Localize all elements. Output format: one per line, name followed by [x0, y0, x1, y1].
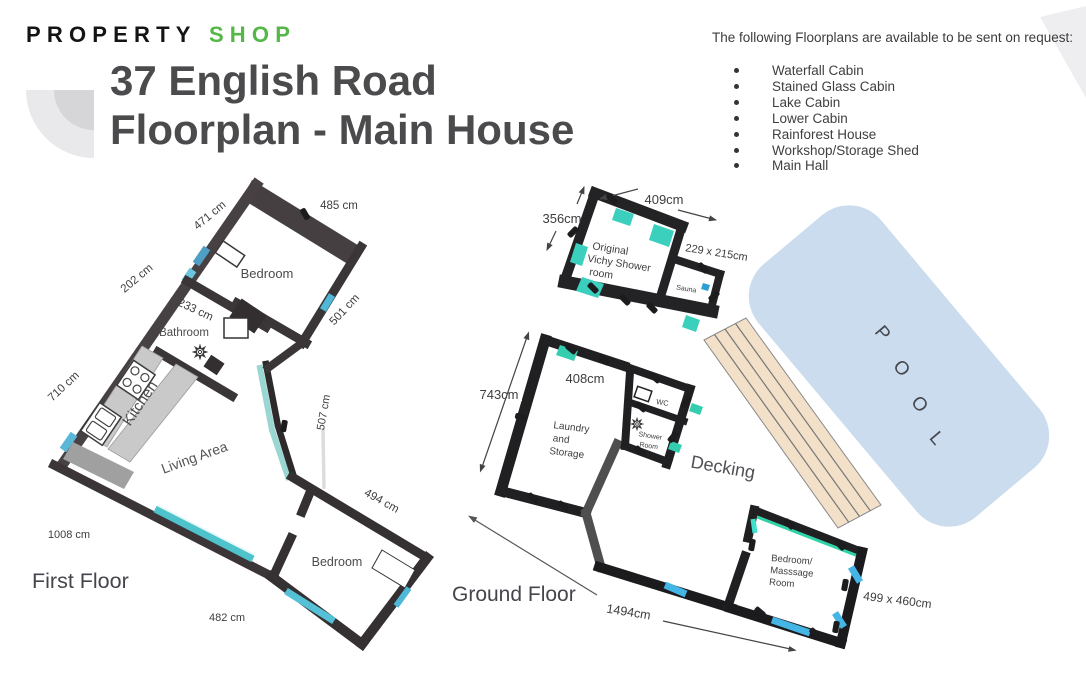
svg-text:Sauna: Sauna — [676, 284, 697, 294]
svg-text:482 cm: 482 cm — [209, 612, 245, 624]
svg-text:507 cm: 507 cm — [315, 394, 333, 432]
svg-text:Bedroom: Bedroom — [312, 555, 363, 569]
svg-text:202 cm: 202 cm — [119, 262, 156, 295]
svg-text:1008 cm: 1008 cm — [48, 529, 90, 541]
svg-text:Shower: Shower — [638, 431, 663, 442]
svg-text:743cm: 743cm — [479, 387, 518, 402]
svg-text:408cm: 408cm — [565, 371, 604, 386]
svg-text:Bedroom: Bedroom — [241, 266, 294, 281]
svg-text:409cm: 409cm — [644, 192, 683, 207]
svg-text:Room: Room — [769, 577, 795, 590]
svg-text:Storage: Storage — [549, 446, 586, 461]
svg-text:1494cm: 1494cm — [606, 602, 652, 623]
svg-text:494 cm: 494 cm — [362, 487, 401, 516]
svg-text:and: and — [552, 433, 570, 446]
svg-text:Bathroom: Bathroom — [159, 327, 209, 339]
svg-text:710 cm: 710 cm — [46, 370, 82, 405]
svg-text:356cm: 356cm — [542, 211, 581, 226]
svg-text:WC: WC — [656, 397, 670, 408]
svg-text:First Floor: First Floor — [32, 569, 129, 593]
svg-text:room: room — [588, 266, 614, 282]
svg-text:Ground Floor: Ground Floor — [452, 583, 576, 606]
svg-text:485 cm: 485 cm — [320, 200, 358, 212]
svg-text:499 x 460cm: 499 x 460cm — [863, 589, 933, 611]
svg-text:Decking: Decking — [689, 452, 757, 483]
svg-text:229 x 215cm: 229 x 215cm — [684, 242, 748, 264]
svg-text:Living Area: Living Area — [159, 438, 230, 477]
svg-text:233 cm: 233 cm — [176, 297, 215, 324]
